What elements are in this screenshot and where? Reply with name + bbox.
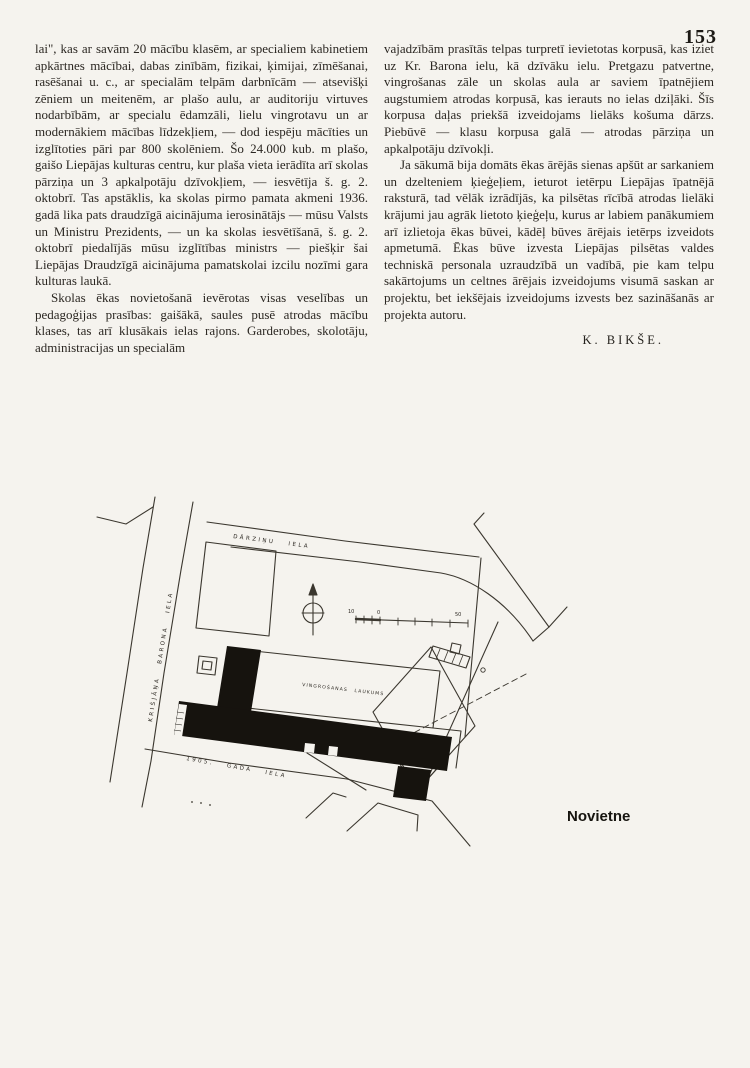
school-end-annex <box>393 766 431 801</box>
right-parcel <box>373 643 528 791</box>
scanned-document-page: 153 lai", kas ar savām 20 mācību klasēm,… <box>0 0 750 1068</box>
hatched-building-outline <box>429 646 470 668</box>
site-plan-drawing: DĀRZIŅU IELA KRIŠJĀŅA BARONA IELA 1905. … <box>0 460 750 880</box>
right-street-join <box>533 627 549 641</box>
author-signature: K. BIKŠE. <box>384 332 714 349</box>
barona-street-west-edge <box>110 497 155 782</box>
paragraph: vajadzībām prasītās telpas turpretī ievi… <box>384 41 714 157</box>
street-corner-flag <box>306 793 346 818</box>
scale-bar <box>356 616 468 627</box>
school-north-wing <box>217 646 261 712</box>
street-corner-fork <box>347 803 418 831</box>
paragraph: lai", kas ar savām 20 mācību klasēm, ar … <box>35 41 368 290</box>
outbuilding-inner <box>202 661 212 670</box>
paragraph: Ja sākumā bija domāts ēkas ārējās sienas… <box>384 157 714 323</box>
site-plan: DĀRZIŅU IELA KRIŠJĀŅA BARONA IELA 1905. … <box>0 460 750 880</box>
empty-parcel-outline <box>196 542 276 636</box>
right-column: vajadzībām prasītās telpas turpretī ievi… <box>384 41 714 349</box>
scale-label-left: 10 <box>348 609 354 615</box>
barona-street-stub <box>142 761 151 807</box>
north-arrow-head <box>309 584 317 595</box>
faint-dots <box>191 801 211 806</box>
sports-field-label: VINGROŠANAS LAUKUMS <box>302 681 385 697</box>
site-plan-caption: Novietne <box>567 808 630 825</box>
scale-label-right: 50 <box>455 612 461 618</box>
outbuilding-outline <box>197 656 217 675</box>
paragraph: Skolas ēkas novietošanā ievērotas visas … <box>35 290 368 356</box>
top-street-south-edge <box>231 547 533 641</box>
left-column: lai", kas ar savām 20 mācību klasēm, ar … <box>35 41 368 356</box>
street-lines <box>97 497 567 846</box>
facade-notch <box>328 746 338 756</box>
right-street <box>474 513 567 627</box>
bottom-street-label: 1905. GADA IELA <box>186 756 288 780</box>
survey-point <box>481 668 485 672</box>
top-street-label: DĀRZIŅU IELA <box>233 533 311 550</box>
facade-notch <box>304 743 315 753</box>
north-arrow <box>302 584 324 635</box>
street-fork-top-left <box>97 507 153 524</box>
left-street-label: KRIŠJĀŅA BARONA IELA <box>147 591 175 723</box>
scale-label-zero: 0 <box>377 610 380 616</box>
